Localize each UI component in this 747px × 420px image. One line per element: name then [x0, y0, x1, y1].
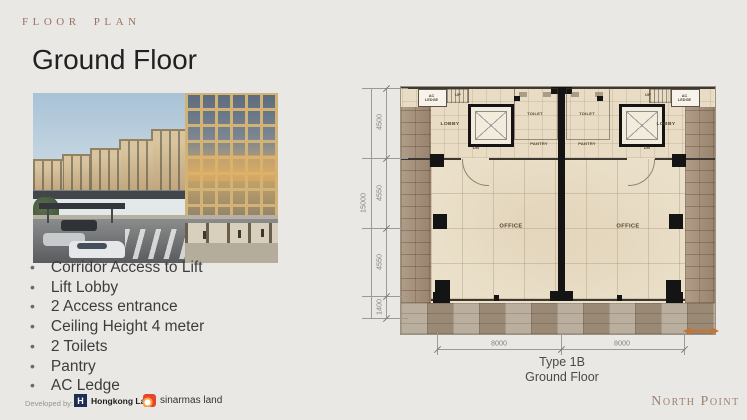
- list-item-text: Lift Lobby: [51, 279, 118, 298]
- plan-pantry-right-label: PANTRY: [577, 141, 597, 146]
- list-item-text: Ceiling Height 4 meter: [51, 318, 204, 337]
- plan-up-left-label: UP: [448, 92, 468, 97]
- plan-office-left-label: OFFICE: [497, 222, 526, 228]
- photo-building-row: [119, 139, 153, 193]
- plan-ac-ledge-right-label: AC LEDGE: [677, 94, 692, 102]
- plan-column: [666, 280, 681, 292]
- sinarmas-land-logo: sinarmas land: [143, 394, 222, 407]
- plan-door-mark: [597, 96, 603, 101]
- dim-vertical-total: 15000: [359, 189, 368, 216]
- list-item-text: Pantry: [51, 358, 96, 377]
- photo-person: [261, 229, 264, 237]
- plan-ac-ledge-left-label: AC LEDGE: [424, 94, 439, 102]
- sinarmas-land-logo-text: sinarmas land: [160, 395, 222, 406]
- entrance-arrow-icon: [683, 325, 719, 337]
- plan-column: [669, 214, 683, 229]
- plan-party-wall-base: [550, 291, 573, 301]
- photo-person: [203, 231, 206, 239]
- list-item: AC Ledge: [20, 376, 365, 396]
- photo-carport-post: [111, 209, 113, 223]
- plan-lift-shaft-left: [468, 104, 514, 147]
- plan-mullion: [494, 295, 499, 301]
- plan-column: [435, 280, 450, 292]
- list-item: 2 Access entrance: [20, 297, 365, 317]
- plan-lift-car: [475, 111, 507, 140]
- floor-plan: AC LEDGE AC LEDGE LOBBY LOBBY TOILET TOI…: [400, 86, 716, 335]
- slide: FLOOR PLAN Ground Floor Corridor Access …: [0, 0, 747, 420]
- dim-ext: [561, 333, 562, 355]
- photo-building-row: [151, 129, 189, 193]
- dim-line-total-vertical: [371, 88, 372, 318]
- dim-vertical-4: 1400: [375, 295, 384, 319]
- list-item: Ceiling Height 4 meter: [20, 317, 365, 337]
- list-item: Corridor Access to Lift: [20, 258, 365, 278]
- photo-window-glow: [188, 155, 276, 181]
- hongkong-land-icon: H: [74, 394, 87, 407]
- plan-column: [433, 292, 450, 303]
- plan-caption-type: Type 1B: [502, 355, 622, 370]
- plan-stone-wall-left: [401, 107, 431, 303]
- dim-line-chain-vertical: [386, 88, 387, 318]
- plan-party-wall: [558, 88, 565, 299]
- plan-fixture: [543, 92, 551, 97]
- plan-fixture: [571, 92, 579, 97]
- plan-column: [666, 292, 683, 303]
- sinarmas-land-icon: [143, 394, 156, 407]
- photo-person: [238, 230, 241, 238]
- plan-lobby-right-label: LOBBY: [654, 121, 679, 127]
- list-item: Lift Lobby: [20, 278, 365, 298]
- dim-vertical-1: 4500: [375, 110, 384, 134]
- plan-dn-left-label: DN: [466, 145, 486, 150]
- feature-list: Corridor Access to Lift Lift Lobby 2 Acc…: [20, 258, 365, 396]
- plan-column: [672, 154, 686, 167]
- north-point-logo: North Point: [648, 394, 743, 410]
- plan-mullion: [617, 295, 622, 301]
- plan-toilet-right-label: TOILET: [577, 111, 597, 116]
- photo-building-row: [90, 148, 121, 193]
- plan-caption-floor: Ground Floor: [502, 370, 622, 385]
- photo-carport-post: [47, 209, 49, 223]
- photo-canopy-bridge: [33, 190, 185, 199]
- list-item-text: 2 Access entrance: [51, 298, 178, 317]
- dim-ext: [437, 333, 438, 355]
- photo-building-row: [33, 159, 63, 193]
- plan-pantry-left-label: PANTRY: [529, 141, 549, 146]
- plan-fixture: [519, 92, 527, 97]
- plan-column: [433, 214, 447, 229]
- plan-lobby-left-label: LOBBY: [438, 121, 463, 127]
- photo-building-row: [62, 154, 91, 193]
- dim-horizontal-2: 8000: [605, 339, 639, 348]
- list-item-text: 2 Toilets: [51, 338, 108, 357]
- plan-caption: Type 1B Ground Floor: [502, 355, 622, 384]
- dim-vertical-3: 4550: [375, 250, 384, 274]
- plan-stone-wall-right: [685, 107, 715, 303]
- plan-toilet-left-label: TOILET: [525, 111, 545, 116]
- plan-door-mark: [514, 96, 520, 101]
- page-title: Ground Floor: [32, 44, 197, 76]
- dim-horizontal-1: 8000: [482, 339, 516, 348]
- dim-ext: [684, 333, 685, 355]
- dim-vertical-2: 4550: [375, 181, 384, 205]
- list-item-text: Corridor Access to Lift: [51, 259, 203, 278]
- plan-dn-right-label: DN: [637, 145, 657, 150]
- plan-terrace-paving: [401, 303, 715, 334]
- plan-office-right-label: OFFICE: [614, 222, 643, 228]
- plan-column: [430, 154, 444, 167]
- photo-car: [61, 220, 97, 231]
- list-item: 2 Toilets: [20, 337, 365, 357]
- list-item: Pantry: [20, 357, 365, 377]
- plan-up-right-label: UP: [638, 92, 658, 97]
- developed-by-label: Developed by:: [25, 399, 73, 408]
- photo-shopfront: [185, 223, 278, 243]
- building-photo: [33, 93, 278, 263]
- eyebrow-floor-plan: FLOOR PLAN: [22, 16, 141, 28]
- photo-car-window: [77, 243, 107, 249]
